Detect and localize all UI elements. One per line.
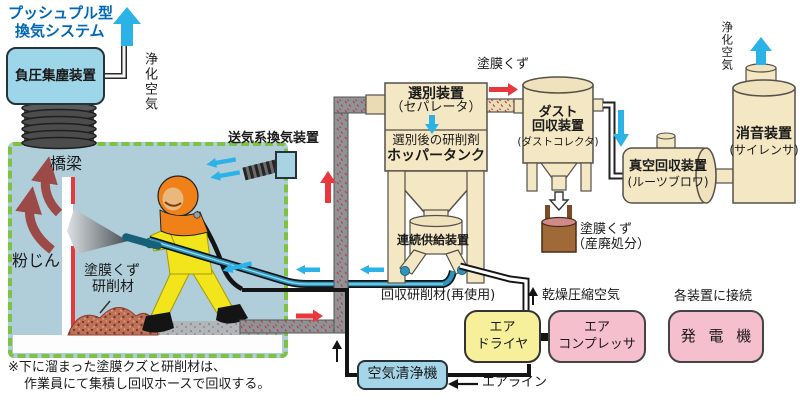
dust-arrows-icon xyxy=(29,174,59,250)
negative-pressure-collector-label: 負圧集塵装置 xyxy=(15,68,96,85)
dust-collector-sub-label: (ダストコレクタ) xyxy=(513,136,603,148)
separator-sub-label: （セパレータ） xyxy=(385,101,487,116)
bridge-label: 橋梁 xyxy=(50,155,82,173)
up-arrow-icon xyxy=(113,7,141,46)
feeder-label: 連続供給装置 xyxy=(397,234,469,248)
dust-collector-label-2: 回収装置 xyxy=(523,120,593,135)
air-purifier-box: 空気清浄機 xyxy=(357,360,448,390)
note-line-1: ※下に溜まった塗膜クズと研削材は、 xyxy=(8,361,226,376)
negative-pressure-collector-box: 負圧集塵装置 xyxy=(6,47,105,105)
after-sorting-label: 選別後の研削剤 xyxy=(385,133,487,147)
scrap-disposal-label-2: （産廃処分） xyxy=(572,238,650,253)
debris-label-1: 塗膜くず xyxy=(84,263,140,279)
air-compressor-label-2: コンプレッサ xyxy=(558,337,636,352)
worker-face xyxy=(163,188,184,211)
air-purifier-label: 空気清浄機 xyxy=(368,366,438,384)
dust-label: 粉じん xyxy=(12,252,60,270)
bridge-wall xyxy=(62,177,75,335)
suction-duct-icon xyxy=(22,103,96,149)
supply-ventilator-icon xyxy=(205,152,296,183)
air-dryer-label-2: ドライヤ xyxy=(477,337,529,352)
up-arrow-icon xyxy=(750,37,772,65)
red-right-arrow-icon xyxy=(489,83,518,96)
purified-air-label-right: 浄化空気 xyxy=(720,21,733,71)
black-up-arrow-icon xyxy=(332,340,342,349)
silencer-sub-label: (サイレンサ) xyxy=(728,144,800,158)
silencer-tank xyxy=(733,37,795,203)
note-line-2: 作業員にて集積し回収ホースで回収する。 xyxy=(24,378,270,393)
hopper-tank-label: ホッパータンク xyxy=(385,148,487,164)
waste-bucket xyxy=(542,205,576,252)
air-compressor-label-1: エア xyxy=(584,320,610,335)
silencer-label: 消音装置 xyxy=(733,126,795,142)
diagram-root: 負圧集塵装置 エア ドライヤ エア コンプレッサ 発 電 機 空気清浄機 プッシ… xyxy=(0,0,800,400)
scrap-disposal-label-1: 塗膜くず xyxy=(580,223,632,238)
air-dryer-box: エア ドライヤ xyxy=(464,310,541,363)
air-line-label: エアライン xyxy=(482,376,547,391)
debris-label-2: 研削材 xyxy=(92,279,134,295)
purified-air-label-left: 浄化空気 xyxy=(141,52,156,112)
vacuum-sub-label: (ルーツブロワ) xyxy=(618,176,718,190)
generator-label: 発 電 機 xyxy=(677,327,756,346)
paint-scrap-label: 塗膜くず xyxy=(477,58,529,73)
air-compressor-box: エア コンプレッサ xyxy=(548,310,646,363)
recovered-abrasive-label: 回収研削材(再使用) xyxy=(381,289,495,304)
black-left-arrow-icon xyxy=(448,379,458,389)
connect-each-device-label: 各装置に接続 xyxy=(674,290,752,305)
supply-ventilator-label: 送気系換気装置 xyxy=(228,132,319,147)
system-title-line2: 換気システム xyxy=(15,23,105,40)
air-dryer-label-1: エア xyxy=(489,320,515,335)
white-down-arrow-icon xyxy=(550,192,568,210)
system-title-line1: プッシュプル型 xyxy=(8,5,113,22)
dry-compressed-air-label: 乾燥圧縮空気 xyxy=(542,289,620,304)
vacuum-label: 真空回収装置 xyxy=(620,160,716,175)
generator-box: 発 電 機 xyxy=(668,310,764,363)
spray-cone xyxy=(67,209,128,254)
